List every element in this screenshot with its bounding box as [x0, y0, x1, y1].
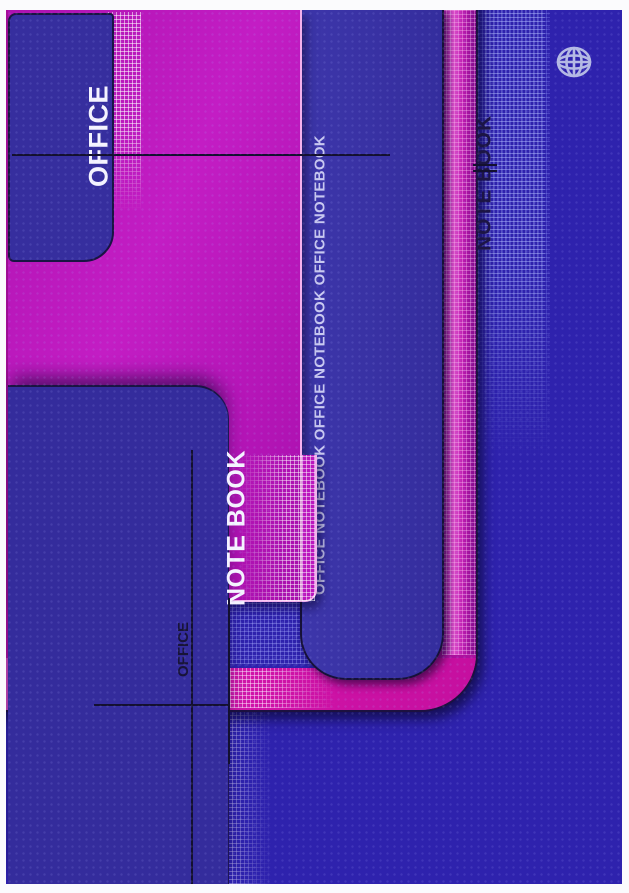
note-book-side-text: NOTE BOOK — [472, 106, 496, 260]
cover-background: OFFICE NOTEBOOK OFFICE NOTEBOOK OFFICE N… — [6, 10, 622, 884]
bottom-left-blue-box — [8, 385, 229, 884]
office-top-text: OFFICE — [85, 84, 113, 188]
notebook-cover-page: OFFICE NOTEBOOK OFFICE NOTEBOOK OFFICE N… — [0, 0, 629, 893]
equals-line-1 — [473, 164, 497, 166]
frame-right-band-grid — [442, 10, 476, 655]
rule-vertical-left — [191, 450, 193, 884]
note-book-large-text: NOTE BOOK — [221, 460, 253, 596]
office-small-text: OFFICE — [175, 610, 192, 690]
rule-vertical-mid — [228, 598, 230, 764]
equals-line-2 — [473, 170, 497, 172]
rule-horizontal-top — [12, 154, 390, 156]
rule-horizontal-bottom — [94, 704, 230, 706]
globe-icon — [555, 46, 593, 80]
